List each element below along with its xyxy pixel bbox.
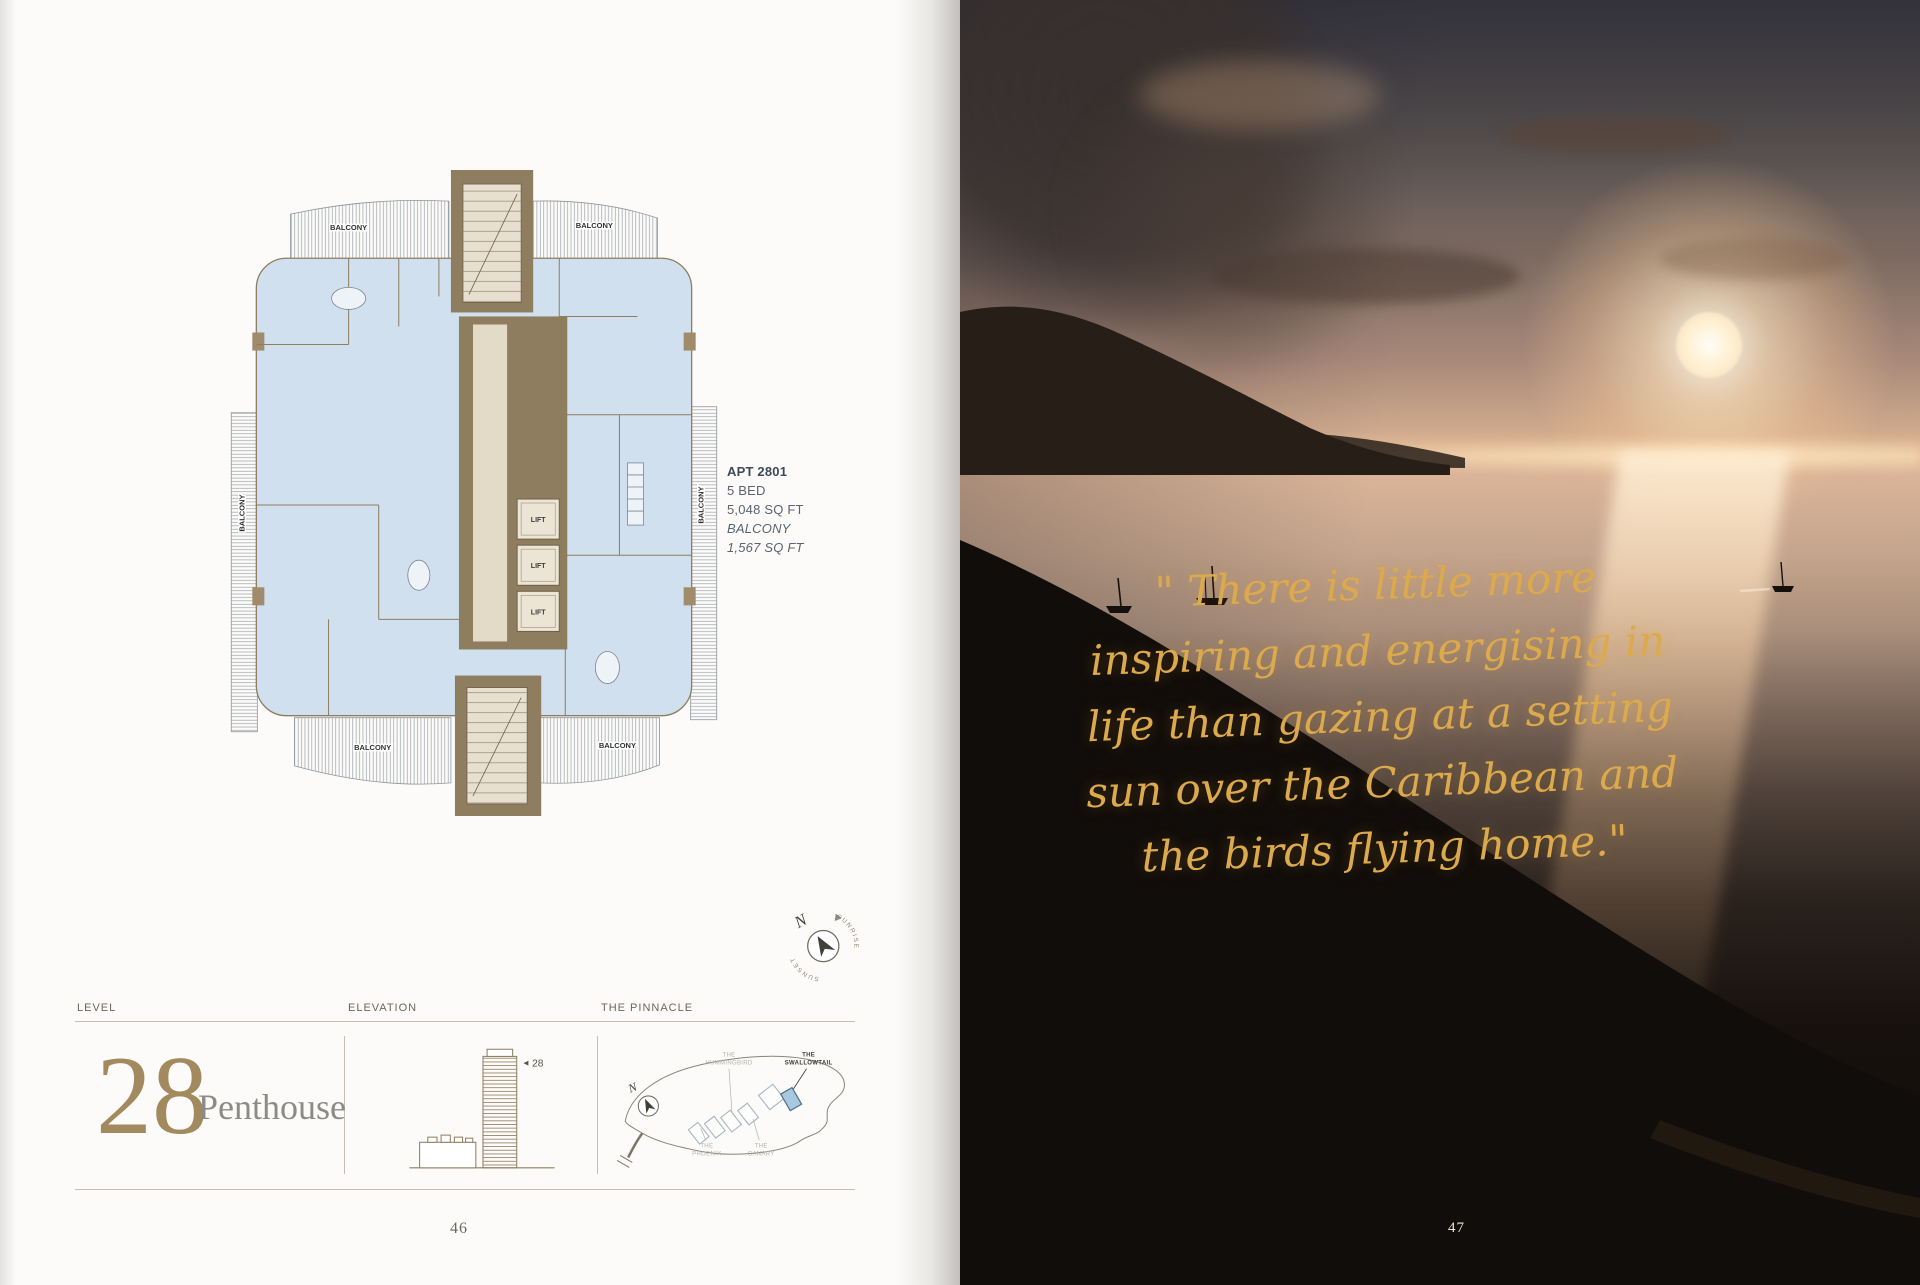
balcony-band-bottom-right (539, 718, 659, 784)
info-bar-bottom-rule (75, 1189, 855, 1190)
balcony-band-right (691, 407, 717, 720)
lift-3: LIFT (517, 591, 559, 631)
level-marker-arrow-icon: ◄ (522, 1059, 530, 1068)
svg-text:CANARY: CANARY (748, 1151, 775, 1157)
svg-text:SWALLOWTAIL: SWALLOWTAIL (785, 1061, 833, 1067)
balcony-band-top-left (290, 200, 448, 260)
label-canary: THE CANARY (748, 1119, 775, 1157)
svg-text:HUMMINGBIRD: HUMMINGBIRD (705, 1061, 753, 1067)
info-bar-top-rule (75, 1021, 855, 1022)
tower-building (483, 1049, 517, 1168)
site-north-label: N (625, 1079, 640, 1096)
balcony-label-right: BALCONY (697, 486, 706, 523)
sunset-photo: " There is little more inspiring and ene… (960, 0, 1920, 1285)
brochure-spread: LIFT LIFT LIFT BALCONY (0, 0, 1920, 1285)
site-building-highlighted (781, 1088, 802, 1111)
site-compass: N (625, 1079, 658, 1116)
level-marker-label: 28 (532, 1059, 544, 1070)
balcony-band-left (231, 413, 257, 732)
site-buildings (688, 1084, 784, 1144)
floor-plan-drawing: LIFT LIFT LIFT BALCONY (228, 166, 720, 818)
svg-text:THE: THE (722, 1053, 735, 1059)
lift-1: LIFT (517, 499, 559, 539)
floor-plan: LIFT LIFT LIFT BALCONY (228, 166, 720, 818)
apartment-balcony-title: BALCONY (727, 519, 804, 538)
level-number: 28 (96, 1040, 208, 1152)
balcony-label-top-left: BALCONY (330, 223, 367, 232)
balcony-label-bottom-left: BALCONY (354, 743, 391, 752)
apartment-area: 5,048 SQ FT (727, 500, 804, 519)
svg-text:THE: THE (802, 1053, 815, 1059)
column-divider-2 (597, 1036, 598, 1174)
svg-text:THE: THE (700, 1143, 713, 1149)
page-edge-shade (0, 0, 16, 1285)
central-core: LIFT LIFT LIFT (459, 316, 567, 649)
lift-label: LIFT (531, 517, 547, 524)
apartment-balcony-area: 1,567 SQ FT (727, 538, 804, 557)
elevation-drawing: ◄ 28 (398, 1038, 568, 1176)
sun-compass-drawing: N SUNRISE SUNSET (790, 903, 868, 987)
road-hatch (617, 1155, 632, 1167)
label-swallowtail: THE SWALLOWTAIL (785, 1053, 833, 1089)
apartment-beds: 5 BED (727, 481, 804, 500)
gutter-shadow (896, 0, 960, 1285)
stair-core-top (451, 170, 533, 312)
quote: " There is little more inspiring and ene… (982, 538, 1777, 895)
apartment-id: APT 2801 (727, 462, 804, 481)
svg-text:THE: THE (755, 1143, 768, 1149)
lift-2: LIFT (517, 545, 559, 585)
compass-north-label: N (790, 909, 810, 932)
balcony-label-left: BALCONY (237, 494, 246, 531)
level-name: Penthouse (198, 1086, 346, 1128)
balcony-label-top-right: BALCONY (576, 221, 613, 230)
lift-label: LIFT (531, 609, 547, 616)
left-page-number: 46 (450, 1220, 468, 1238)
pinnacle-header: THE PINNACLE (601, 1002, 693, 1014)
level-header: LEVEL (77, 1002, 116, 1014)
site-plan: N THE HUMMINGBIRD THE SWALLOWTAIL (600, 1028, 862, 1180)
elevation-header: ELEVATION (348, 1002, 417, 1014)
balcony-label-bottom-right: BALCONY (599, 741, 636, 750)
left-page: LIFT LIFT LIFT BALCONY (0, 0, 960, 1285)
balcony-band-top-right (531, 201, 657, 260)
stair-core-bottom (455, 676, 541, 816)
podium-building (420, 1135, 476, 1168)
sun-compass: N SUNRISE SUNSET (790, 903, 868, 987)
apartment-info: APT 2801 5 BED 5,048 SQ FT BALCONY 1,567… (727, 462, 804, 557)
right-page-number: 47 (1448, 1220, 1465, 1237)
svg-text:PHOENIX: PHOENIX (692, 1151, 721, 1157)
access-road (628, 1133, 642, 1157)
lift-label: LIFT (531, 563, 547, 570)
site-labels: THE HUMMINGBIRD THE SWALLOWTAIL THE PHOE… (692, 1053, 832, 1158)
